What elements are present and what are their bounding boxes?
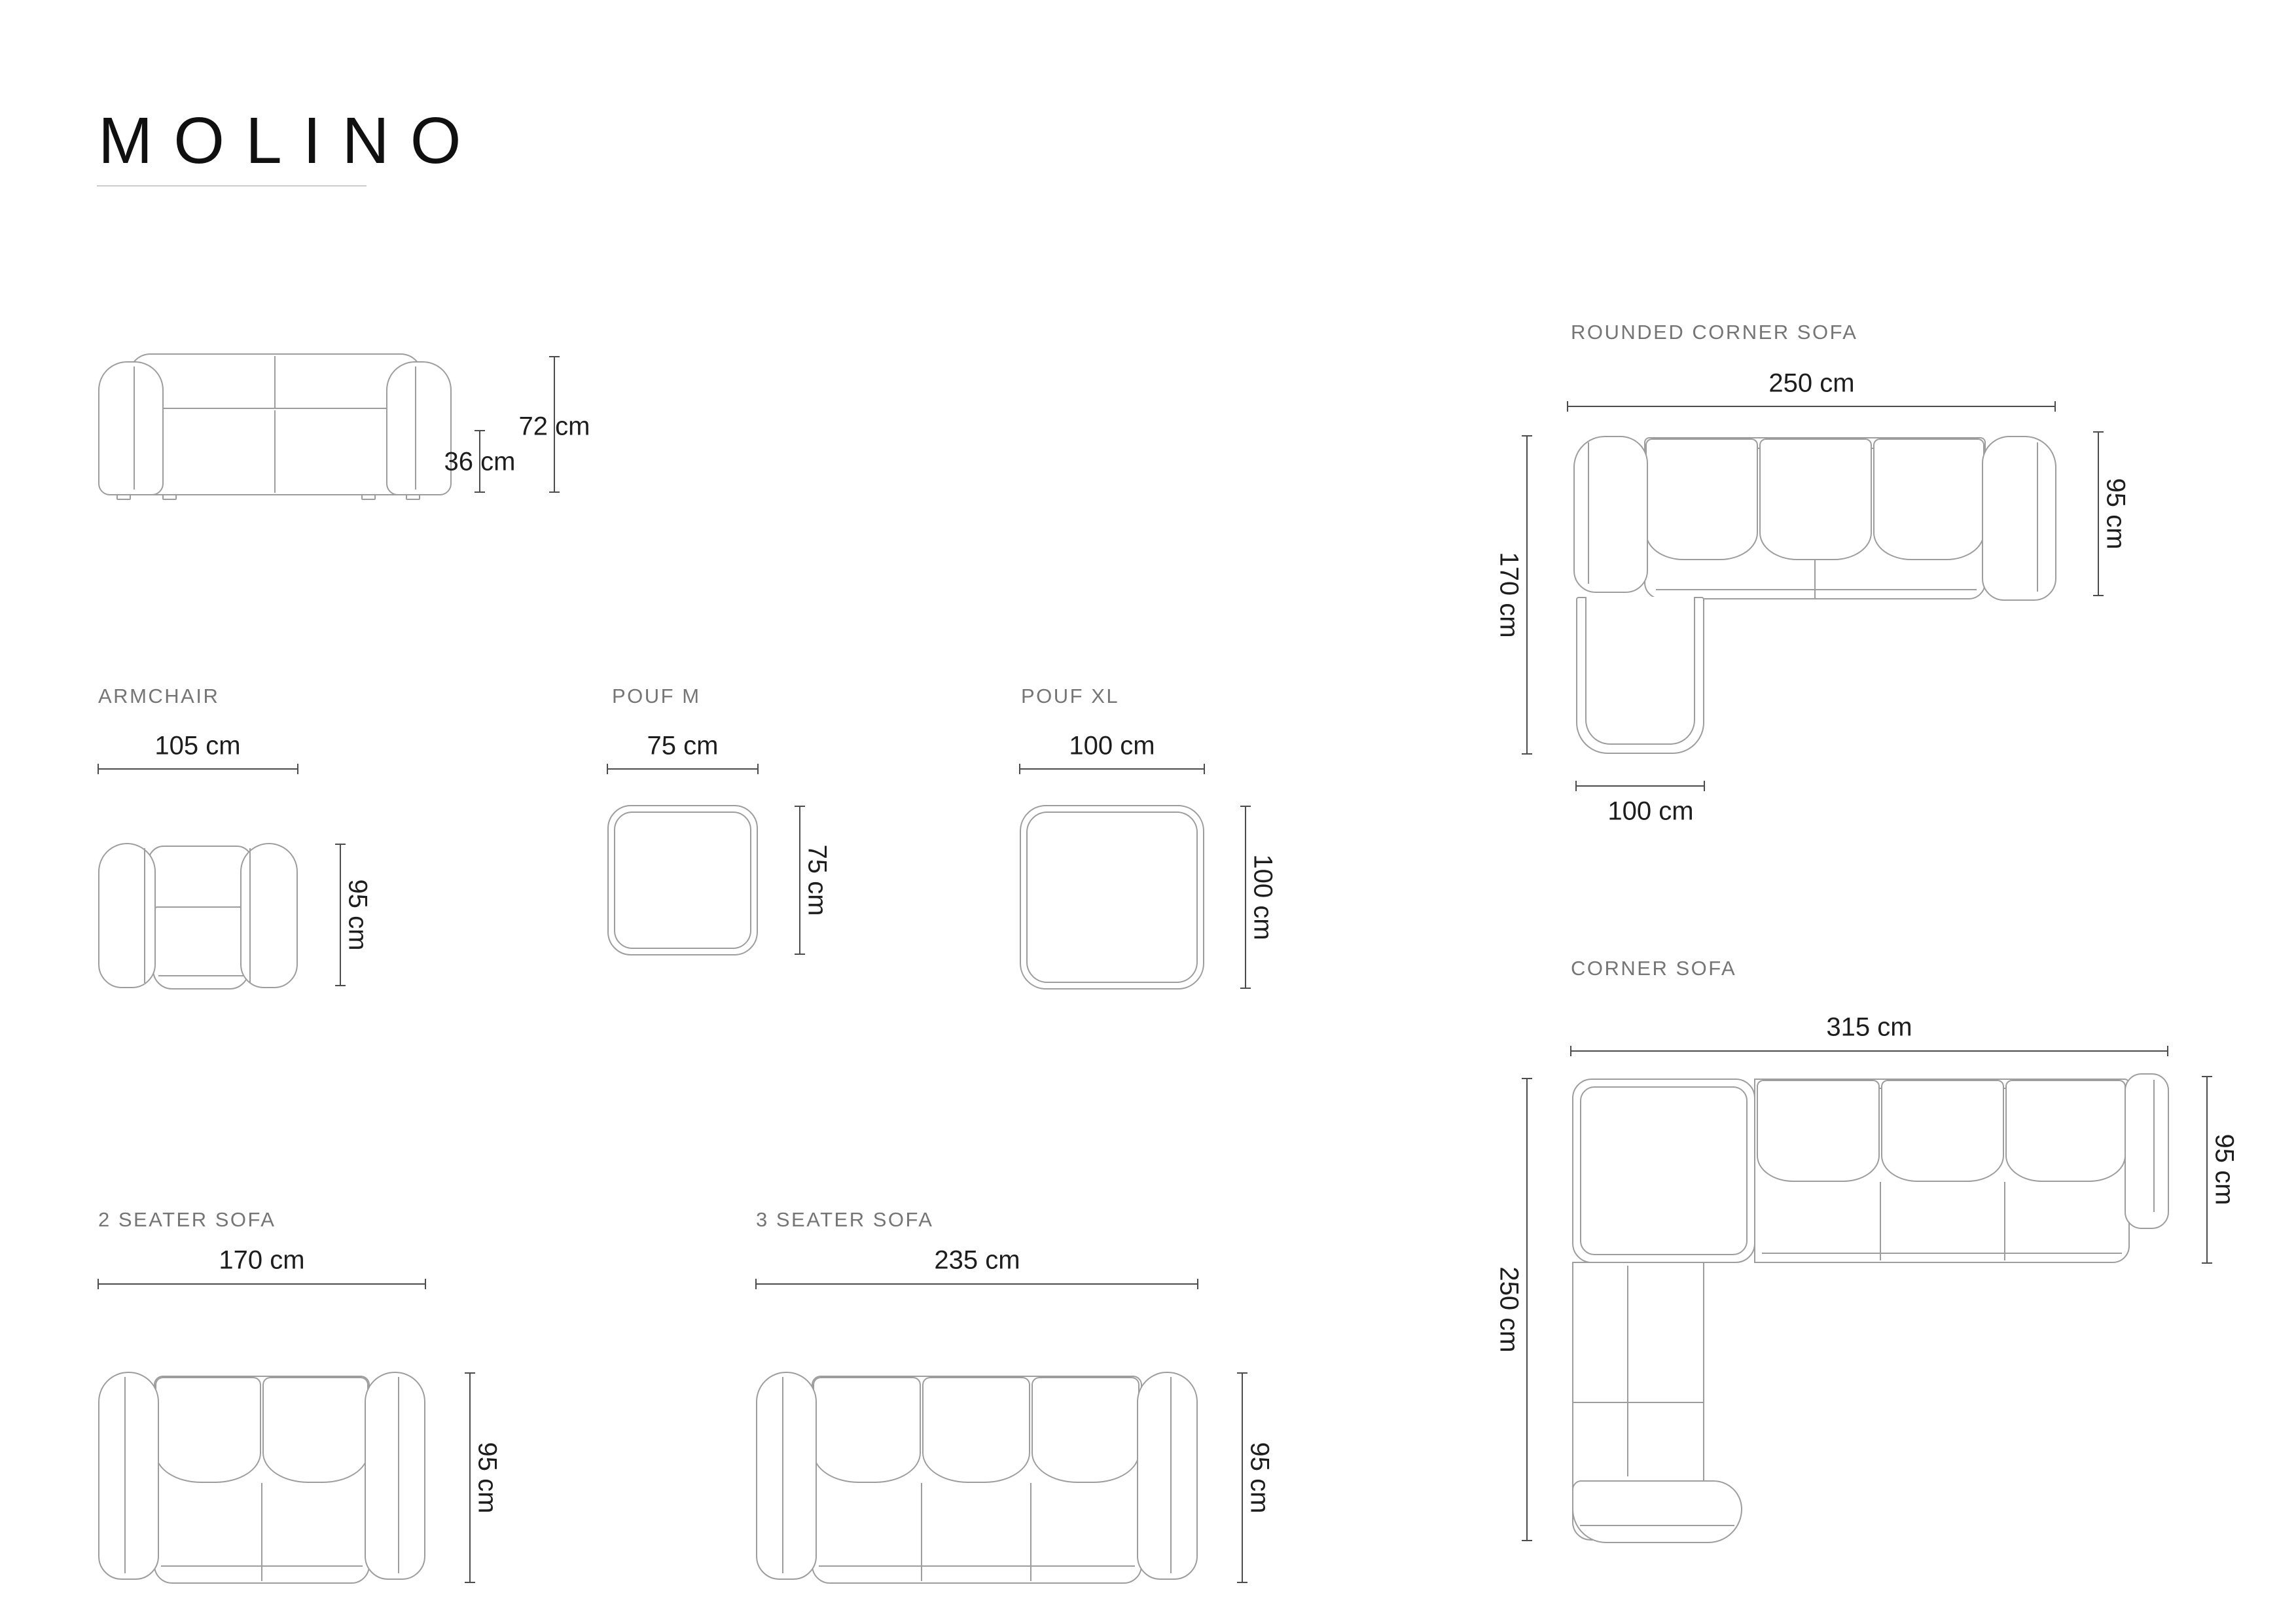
two-seater-left-armrest	[98, 1372, 159, 1580]
rounded-corner-chaise-dim-label: 100 cm	[1607, 797, 1693, 827]
pouf-xl-width-dim-line	[1020, 768, 1204, 770]
corner-sofa-bottom-armrest-stripe	[1580, 1525, 1734, 1526]
armchair-seat	[152, 906, 249, 990]
corner-sofa-bottom-armrest	[1572, 1480, 1742, 1543]
pouf-xl-depth-dim-line	[1245, 806, 1246, 988]
three-seater-label: 3 SEATER SOFA	[756, 1208, 933, 1232]
two-seater-depth-dim-line	[469, 1373, 471, 1582]
three-seater-back-cushion	[1031, 1377, 1139, 1483]
sofa-front-left-armrest-stripe	[134, 366, 135, 490]
three-seater-right-armrest-stripe	[1170, 1377, 1172, 1573]
two-seater-left-armrest-stripe	[124, 1377, 126, 1573]
pouf-m-width-dim-label: 75 cm	[647, 732, 719, 761]
two-seater-right-armrest	[365, 1372, 425, 1580]
rounded-corner-back-cushion	[1759, 438, 1872, 560]
corner-sofa-corner-cushion-line	[1580, 1086, 1748, 1255]
title-underline	[97, 185, 367, 187]
seat-height-dim-label: 36 cm	[444, 448, 516, 477]
rounded-corner-seat-seam	[1814, 560, 1816, 598]
corner-sofa-depth-dim-line	[2206, 1077, 2208, 1263]
sofa-front-left-armrest	[98, 361, 164, 495]
rounded-corner-chaise-cushion	[1585, 597, 1695, 745]
rounded-corner-side-dim-label: 170 cm	[1494, 552, 1524, 637]
corner-sofa-back-cushion	[1881, 1080, 2004, 1182]
rounded-corner-side-dim-line	[1526, 436, 1528, 754]
three-seater-back-cushion	[813, 1377, 921, 1483]
pouf-m-width-dim-line	[607, 768, 758, 770]
corner-sofa-side-dim-line	[1526, 1079, 1528, 1541]
armchair-depth-dim-label: 95 cm	[343, 880, 372, 951]
pouf-xl-label: POUF XL	[1021, 685, 1119, 708]
pouf-xl-cushion-line	[1026, 811, 1198, 983]
pouf-m-depth-dim-label: 75 cm	[802, 845, 832, 916]
rounded-corner-right-armrest-stripe	[2037, 442, 2038, 592]
corner-sofa-back-cushion	[2005, 1080, 2126, 1182]
three-seater-depth-dim-line	[1242, 1373, 1243, 1582]
rounded-corner-right-armrest	[1982, 436, 2056, 601]
corner-sofa-label: CORNER SOFA	[1571, 957, 1736, 980]
spec-sheet: MOLINO 36 cm 72 cm ROUNDED CORNER SOFA 2…	[0, 0, 2296, 1623]
rounded-corner-sofa-label: ROUNDED CORNER SOFA	[1571, 321, 1857, 344]
two-seater-right-armrest-stripe	[398, 1377, 399, 1573]
corner-sofa-seat-seam	[2004, 1182, 2005, 1260]
rounded-corner-back-cushion	[1645, 438, 1758, 560]
corner-sofa-width-dim-label: 315 cm	[1826, 1013, 1912, 1043]
corner-sofa-side-seam	[1573, 1402, 1703, 1403]
armchair-depth-dim-line	[340, 844, 341, 986]
rounded-corner-chaise-dim-line	[1576, 785, 1704, 787]
three-seater-left-armrest-stripe	[782, 1377, 783, 1573]
page-title: MOLINO	[98, 103, 482, 179]
three-seater-front-edge	[819, 1565, 1135, 1567]
armchair-front-edge	[158, 975, 243, 976]
three-seater-depth-dim-label: 95 cm	[1245, 1442, 1274, 1514]
three-seater-width-dim-label: 235 cm	[934, 1246, 1020, 1275]
armchair-left-armrest	[98, 843, 156, 988]
sofa-front-right-armrest-stripe	[415, 366, 416, 490]
three-seater-left-armrest	[756, 1372, 817, 1580]
two-seater-depth-dim-label: 95 cm	[473, 1442, 502, 1514]
two-seater-front-edge	[161, 1565, 363, 1567]
sofa-front-right-armrest	[386, 361, 452, 495]
rounded-corner-width-dim-label: 250 cm	[1768, 369, 1854, 399]
armchair-left-armrest-stripe	[144, 848, 145, 983]
rounded-corner-left-armrest	[1573, 436, 1648, 593]
corner-sofa-depth-dim-label: 95 cm	[2210, 1134, 2239, 1205]
two-seater-width-dim-label: 170 cm	[219, 1246, 304, 1275]
pouf-m-label: POUF M	[612, 685, 701, 708]
pouf-m-cushion-line	[614, 811, 751, 949]
pouf-xl-depth-dim-label: 100 cm	[1248, 854, 1278, 940]
three-seater-width-dim-line	[756, 1283, 1198, 1285]
three-seater-right-armrest	[1137, 1372, 1198, 1580]
rounded-corner-front-edge	[1656, 589, 1977, 590]
rounded-corner-width-dim-line	[1568, 406, 2055, 407]
corner-sofa-width-dim-line	[1571, 1050, 2168, 1052]
corner-sofa-side-dim-label: 250 cm	[1494, 1266, 1524, 1352]
pouf-m-depth-dim-line	[799, 806, 800, 954]
corner-sofa-back-cushion	[1757, 1080, 1880, 1182]
rounded-corner-depth-dim-line	[2098, 432, 2099, 596]
corner-sofa-right-armrest	[2125, 1073, 2169, 1229]
corner-sofa-side-back-line	[1627, 1266, 1628, 1476]
rounded-corner-left-armrest-stripe	[1588, 442, 1589, 584]
armchair-width-dim-line	[98, 768, 298, 770]
two-seater-label: 2 SEATER SOFA	[98, 1208, 276, 1232]
corner-sofa-right-armrest-stripe	[2153, 1080, 2155, 1212]
rounded-corner-depth-dim-label: 95 cm	[2101, 478, 2130, 550]
armchair-width-dim-label: 105 cm	[154, 732, 240, 761]
pouf-xl-width-dim-label: 100 cm	[1069, 732, 1155, 761]
three-seater-back-cushion	[922, 1377, 1030, 1483]
corner-sofa-seat-seam	[1880, 1182, 1881, 1260]
armchair-right-armrest-stripe	[249, 848, 251, 983]
total-height-dim-label: 72 cm	[519, 412, 590, 442]
two-seater-width-dim-line	[98, 1283, 425, 1285]
two-seater-back-cushion	[155, 1377, 261, 1483]
rounded-corner-back-cushion	[1873, 438, 1984, 560]
two-seater-back-cushion	[262, 1377, 368, 1483]
armchair-label: ARMCHAIR	[98, 685, 219, 708]
sofa-front-seat-seam	[274, 410, 276, 493]
corner-sofa-front-edge	[1762, 1253, 2122, 1254]
